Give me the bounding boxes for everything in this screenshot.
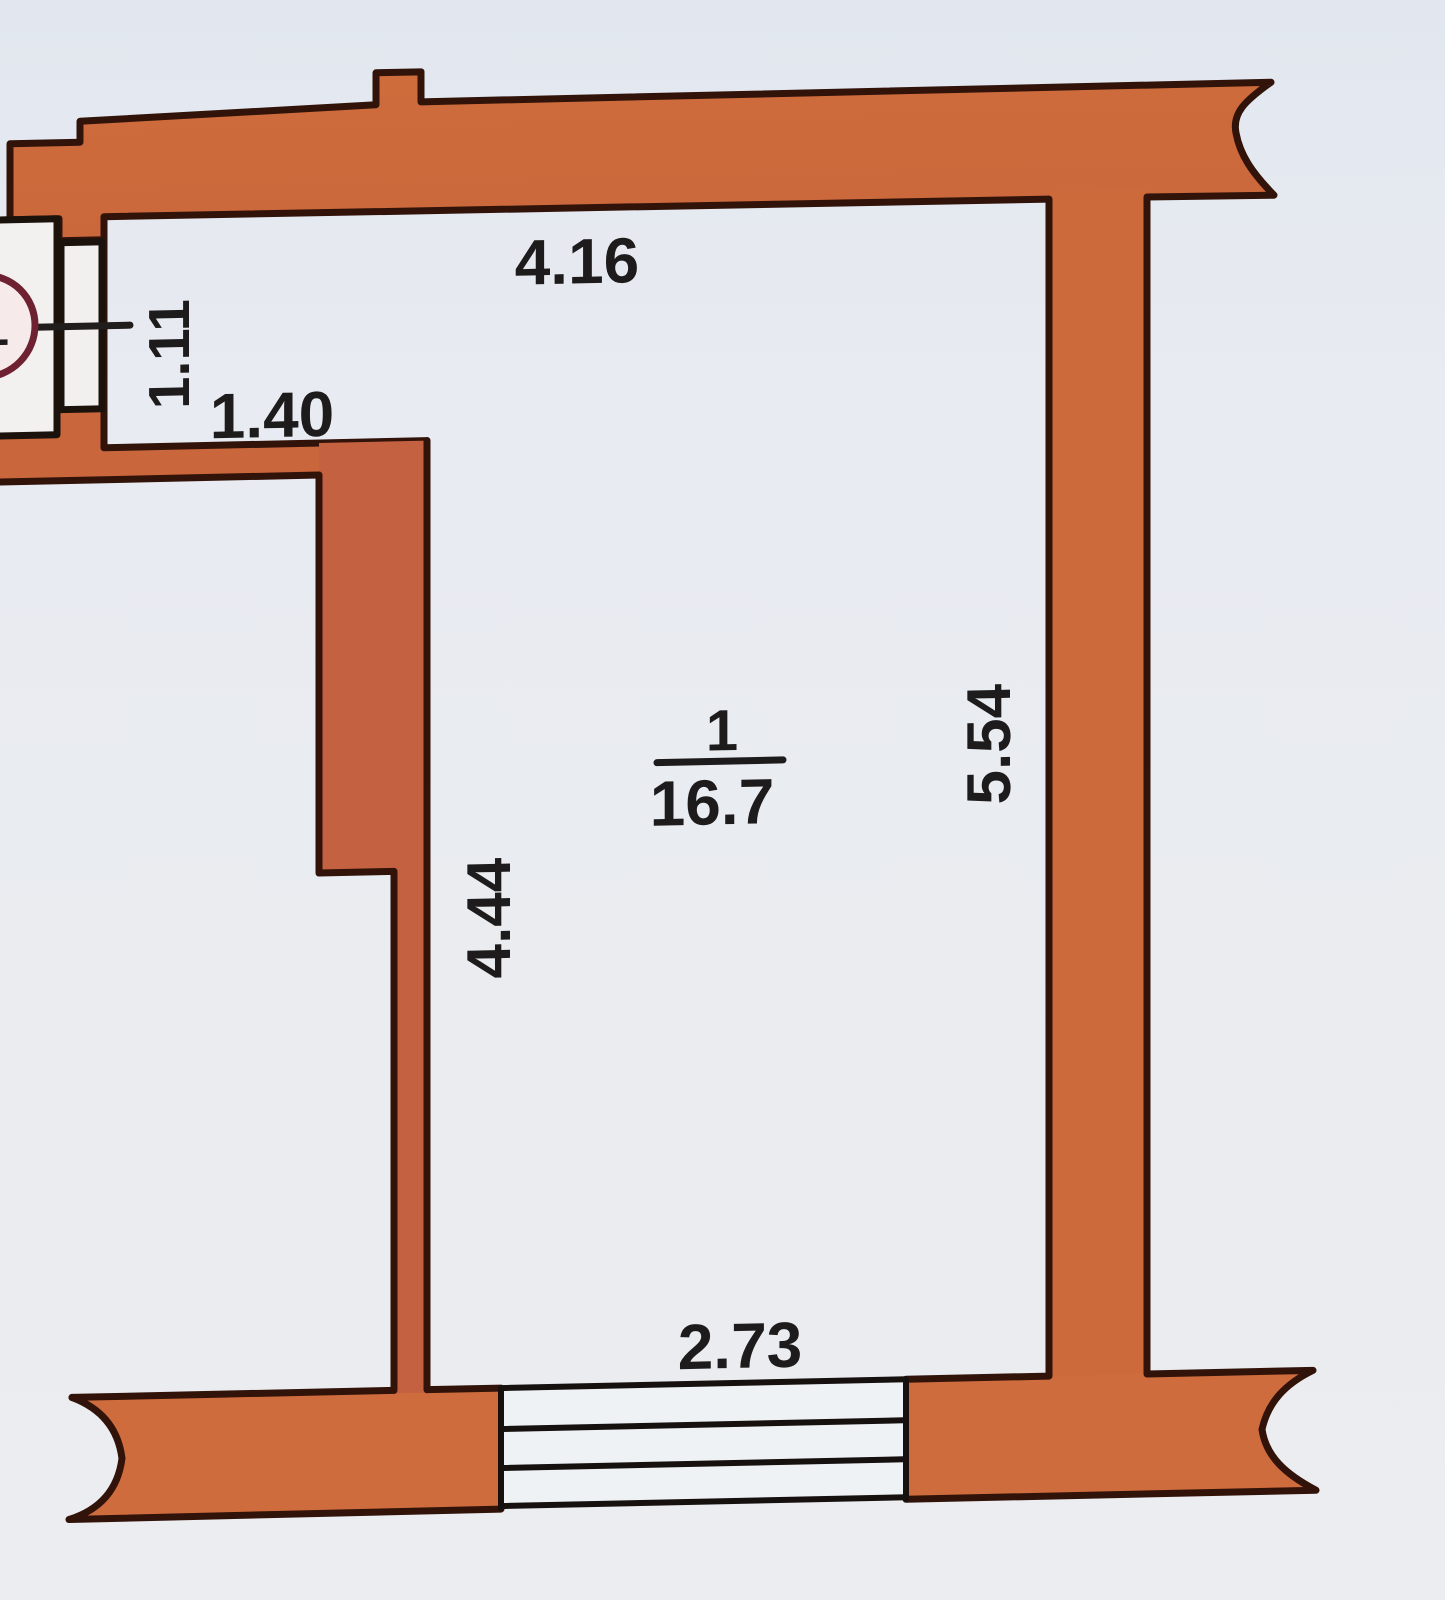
svg-text:1: 1 — [706, 698, 738, 764]
svg-text:1.40: 1.40 — [210, 378, 335, 453]
svg-text:4.16: 4.16 — [515, 224, 640, 299]
svg-text:5.54: 5.54 — [955, 683, 1024, 806]
svg-text:1.11: 1.11 — [137, 299, 202, 410]
svg-text:16.7: 16.7 — [650, 765, 775, 840]
svg-text:4.44: 4.44 — [455, 857, 524, 980]
svg-text:1: 1 — [0, 297, 9, 358]
svg-text:2.73: 2.73 — [678, 1309, 803, 1384]
